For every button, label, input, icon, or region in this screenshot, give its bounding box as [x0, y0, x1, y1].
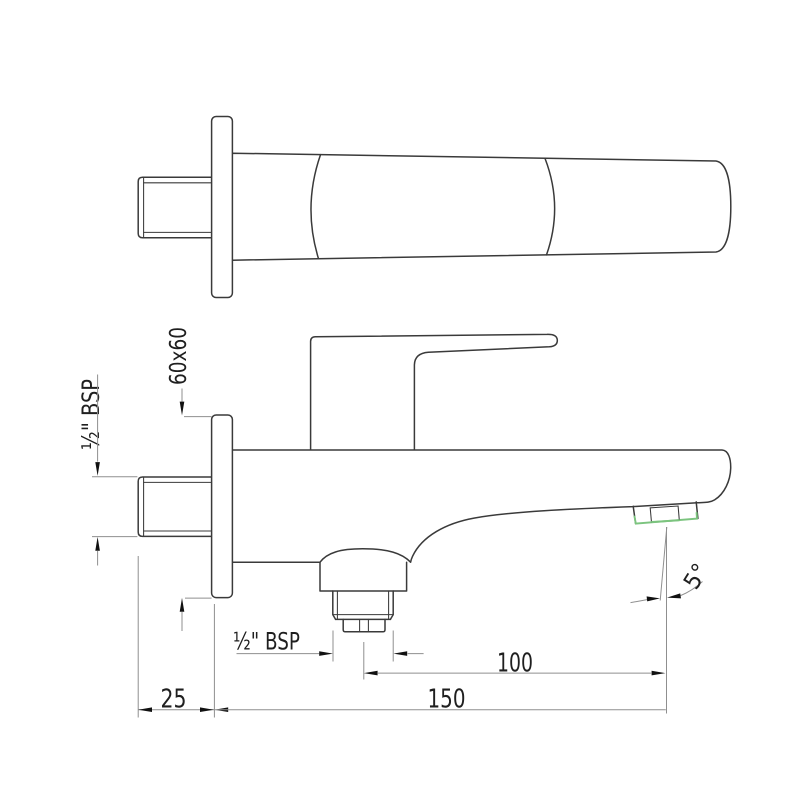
arrowhead-down: [180, 402, 185, 416]
arrowhead-up: [180, 598, 185, 612]
thread-outline: [138, 177, 211, 238]
side-view: [138, 334, 731, 631]
dim-label-150: 150: [428, 685, 466, 715]
drawing-page: 60x60 ½" BSP ½" BSP 100: [0, 0, 800, 800]
arrowhead-down: [95, 462, 100, 476]
arrowhead-left: [364, 671, 378, 676]
diverter-nut: [343, 619, 385, 631]
arrowhead-right: [200, 707, 214, 712]
dimension-angle-5deg: 5°: [631, 527, 715, 714]
dimension-projection-150: 150: [214, 685, 665, 715]
dimension-outlet-offset-100: 100: [364, 642, 666, 680]
dim-label-100: 100: [497, 649, 533, 679]
angled-line: [660, 527, 667, 601]
spout-body-side-view: [232, 450, 731, 562]
dim-label-5deg: 5°: [679, 559, 714, 594]
dim-label-plate: 60x60: [166, 327, 192, 385]
dimension-diverter-bsp: ½" BSP: [233, 628, 424, 662]
dim-label-diverter-bsp: ½" BSP: [233, 628, 300, 656]
diverter-nut-detail: [360, 619, 369, 631]
thread-outline: [138, 477, 211, 536]
dimension-inlet-bsp: ½" BSP: [77, 375, 137, 566]
diverter-handle: [311, 334, 558, 450]
wall-flange-top-view: [212, 117, 233, 298]
arrowhead-right: [652, 671, 666, 676]
arrowhead-left: [393, 651, 407, 656]
wall-flange-side-view: [212, 415, 233, 598]
aerator-insert-green-edge: [652, 520, 679, 522]
arrowhead-right: [319, 651, 333, 656]
diverter-thread-right: [390, 591, 393, 619]
spout-body-top-view: [232, 153, 731, 260]
technical-drawing-canvas: 60x60 ½" BSP ½" BSP 100: [0, 0, 800, 800]
arrowhead-left: [667, 593, 681, 598]
arrowhead-right: [647, 596, 660, 601]
inlet-thread-side-view: [138, 477, 211, 536]
arrowhead-up: [95, 537, 100, 551]
top-view: [138, 117, 731, 298]
dimension-wall-gap-25: 25: [138, 556, 214, 718]
hand-shower-diverter-outlet: [320, 562, 407, 632]
dim-label-25: 25: [161, 685, 187, 715]
dim-label-inlet-bsp: ½" BSP: [77, 379, 105, 450]
arc-tail-left: [631, 600, 648, 603]
diverter-block: [320, 562, 407, 591]
arrowhead-left: [138, 707, 152, 712]
inlet-thread-top-view: [138, 177, 211, 238]
diverter-thread-left: [333, 591, 336, 619]
